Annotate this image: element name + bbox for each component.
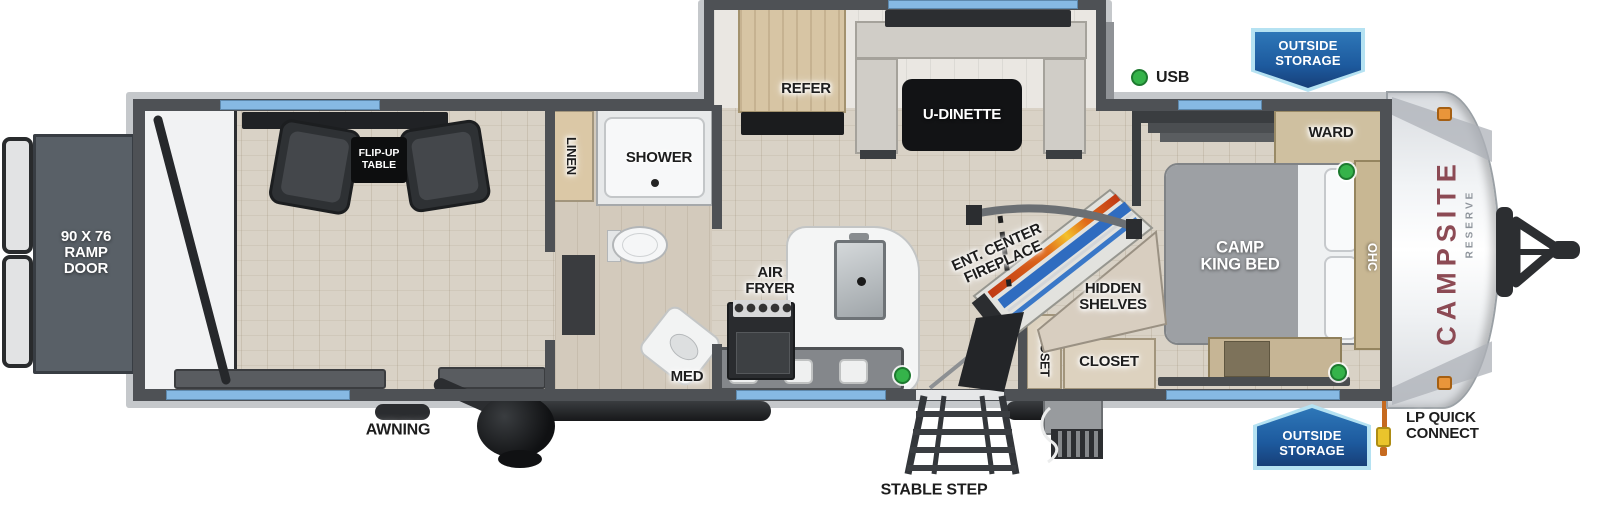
- outside-storage-banner-bottom: OUTSIDE STORAGE: [1253, 404, 1371, 470]
- range-oven: [736, 332, 790, 374]
- usb-label: USB: [1156, 70, 1189, 87]
- awning-arm-left: [375, 404, 430, 420]
- lp-fitting: [1376, 427, 1391, 447]
- hitch-bar: [1496, 207, 1513, 297]
- u-dinette-label: U-DINETTE: [923, 107, 1001, 123]
- ramp-door-label: 90 X 76 RAMP DOOR: [61, 229, 111, 277]
- dinette-foot-left: [860, 150, 896, 159]
- refer-label: REFER: [781, 81, 831, 97]
- garage-mat-left: [174, 369, 386, 389]
- chair-left: [267, 118, 363, 217]
- floorplan-canvas: 90 X 76 RAMP DOOR FLIP-UP TABLE LINEN SH…: [0, 0, 1600, 516]
- dinette-foot-right: [1046, 150, 1082, 159]
- range-burners: [733, 300, 791, 317]
- bed-pillow-top: [1324, 168, 1358, 252]
- chair-right: [398, 118, 492, 214]
- bed-foot-step: [1224, 341, 1270, 377]
- step-drum: [477, 394, 555, 458]
- toilet: [612, 226, 668, 264]
- closet-side-label: CLOSET: [1037, 327, 1050, 377]
- bathroom-cabinet-panel: [562, 255, 595, 335]
- hidden-shelves-label: HIDDEN SHELVES: [1079, 281, 1147, 313]
- chair-right-cushion: [411, 131, 480, 202]
- kitchen-indicator-dot: [894, 367, 911, 384]
- lp-quick-connect-label: LP QUICK CONNECT: [1406, 410, 1479, 442]
- bedroom-shelf-bar-3: [1160, 133, 1278, 142]
- lp-tip: [1380, 447, 1387, 456]
- window-bedroom-bottom: [1166, 390, 1340, 400]
- flip-up-table-top: [242, 112, 448, 129]
- furnace-vent: [1051, 429, 1103, 459]
- ramp-rail-bottom: [2, 255, 33, 368]
- bathroom-wall-left-lower: [545, 340, 555, 390]
- bedroom-shelf-bar-1: [1136, 110, 1278, 123]
- window-kitchen-bottom: [736, 390, 886, 400]
- range-air-fryer: [727, 302, 795, 380]
- outside-storage-banner-top: OUTSIDE STORAGE: [1251, 28, 1365, 92]
- shower-drain: [651, 179, 659, 187]
- bedroom-indicator-dot-bottom: [1330, 364, 1347, 381]
- bed-slide-rail: [1158, 377, 1350, 386]
- wall-front: [1380, 99, 1392, 401]
- wall-rear: [133, 99, 145, 401]
- closet-front-label: CLOSET: [1079, 354, 1139, 370]
- bathroom-wall-right-upper: [712, 105, 722, 229]
- awning-label: AWNING: [366, 423, 431, 440]
- brand-series: RESERVE: [1465, 190, 1476, 259]
- dinette-tv-bar: [885, 10, 1071, 27]
- marker-light-bottom: [1437, 376, 1452, 390]
- closet-wall: [1018, 296, 1027, 390]
- bathroom-wall-left-upper: [545, 105, 555, 252]
- step-drum-foot: [498, 450, 542, 468]
- window-garage-bottom: [166, 390, 350, 400]
- hitch-coupler: [1550, 241, 1580, 259]
- dinette-bench-right: [1043, 58, 1086, 154]
- chair-left-cushion: [280, 130, 350, 203]
- sink-drain: [857, 277, 866, 286]
- window-slideout: [888, 0, 1078, 9]
- refrigerator-front: [741, 112, 844, 135]
- slideout-wall-right: [1096, 0, 1106, 109]
- air-fryer-label: AIR FRYER: [745, 265, 794, 297]
- slideout-wall-left: [704, 0, 714, 109]
- marker-light-top: [1437, 107, 1452, 121]
- counter-appliance-3: [839, 359, 868, 384]
- shower-label: SHOWER: [626, 150, 692, 166]
- toilet-seat: [622, 233, 658, 257]
- window-garage-top: [220, 100, 380, 110]
- dinette-bench-left: [855, 58, 898, 154]
- linen-label: LINEN: [564, 137, 578, 175]
- bed-foot-dresser: [1208, 337, 1342, 379]
- brand-name: CAMPSITE: [1432, 158, 1463, 346]
- usb-indicator-dot: [1131, 69, 1148, 86]
- camp-king-bed-label: CAMP KING BED: [1200, 240, 1279, 275]
- bathroom-wall-right-lower: [712, 344, 722, 390]
- ohc-label: OHC: [1365, 243, 1379, 271]
- flip-up-table-label: FLIP-UP TABLE: [351, 137, 407, 183]
- bedroom-indicator-dot-top: [1338, 163, 1355, 180]
- ward-label: WARD: [1308, 125, 1353, 141]
- bedroom-shelf-bar-2: [1148, 123, 1278, 133]
- bed-pillow-bottom: [1324, 256, 1358, 340]
- med-label: MED: [671, 369, 704, 385]
- window-bedroom-top: [1178, 100, 1262, 110]
- stable-step-label: STABLE STEP: [881, 483, 988, 500]
- outside-storage-banner-top-text: OUTSIDE STORAGE: [1255, 32, 1361, 88]
- rear-opening-frame: [141, 106, 237, 392]
- outside-storage-banner-bottom-text: OUTSIDE STORAGE: [1257, 408, 1367, 466]
- entry-doorway-gap: [916, 390, 1004, 400]
- ramp-rail-top: [2, 137, 33, 254]
